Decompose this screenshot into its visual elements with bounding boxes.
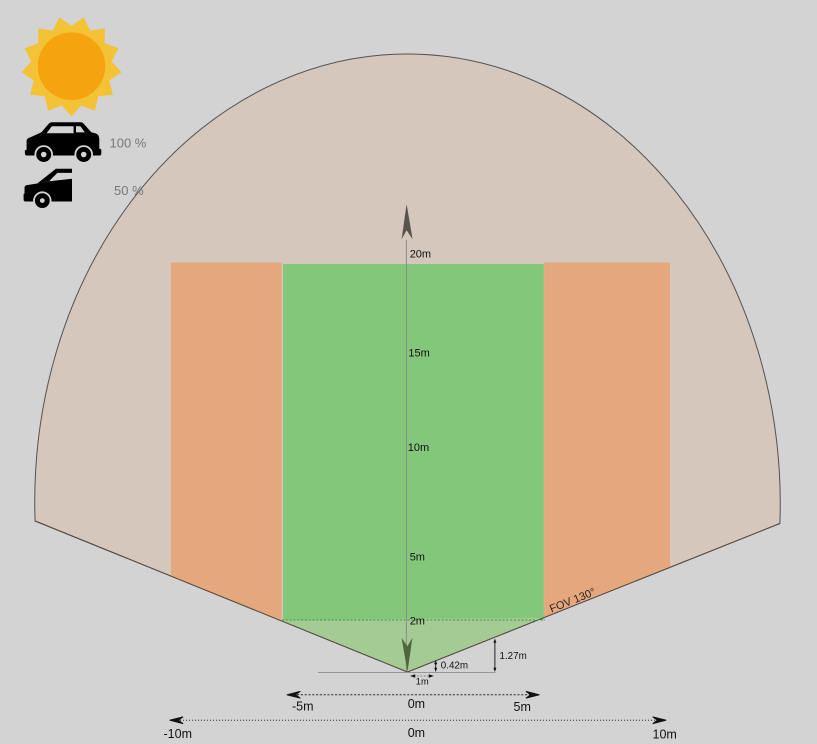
svg-text:-5m: -5m [292,699,314,713]
svg-text:15m: 15m [408,347,429,359]
svg-text:100 %: 100 % [110,135,147,150]
svg-text:-10m: -10m [164,727,192,741]
svg-text:20m: 20m [410,249,431,261]
svg-text:0m: 0m [408,697,425,711]
svg-text:5m: 5m [410,552,425,564]
svg-text:1m: 1m [416,676,429,686]
svg-text:10m: 10m [408,442,429,454]
svg-text:50 %: 50 % [114,183,144,198]
svg-text:0m: 0m [408,726,425,740]
svg-text:10m: 10m [653,728,677,742]
svg-text:2m: 2m [410,615,425,627]
svg-text:0.42m: 0.42m [441,661,468,672]
svg-text:5m: 5m [514,700,531,714]
svg-text:1.27m: 1.27m [500,651,527,662]
